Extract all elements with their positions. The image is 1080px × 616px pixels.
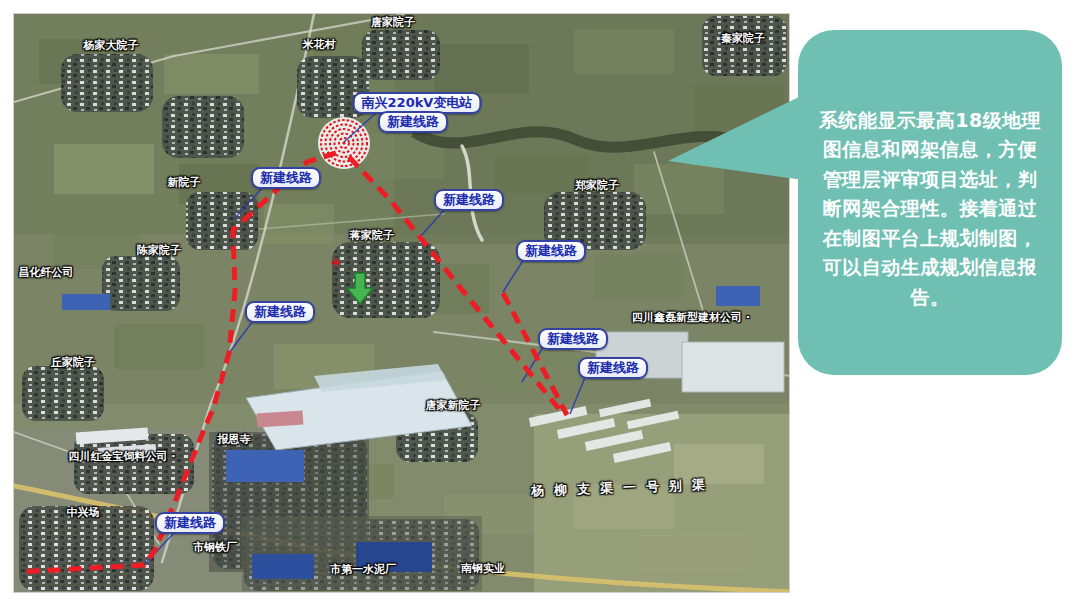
place-name: 市钢铁厂 — [193, 540, 237, 555]
route-label: 新建线路 — [434, 189, 504, 211]
place-name: 杨家大院子 — [84, 38, 139, 53]
callout-tail — [650, 85, 805, 185]
route-label: 新建线路 — [378, 111, 448, 133]
route-label: 新建线路 — [245, 301, 315, 323]
place-name: 新院子 — [168, 175, 201, 190]
callout-text: 系统能显示最高18级地理图信息和网架信息，方便管理层评审项目选址，判断网架合理性… — [798, 30, 1062, 312]
place-name: 蒋家院子 — [350, 228, 394, 243]
place-name: 唐家新院子 — [426, 398, 481, 413]
route-label: 新建线路 — [516, 240, 586, 262]
place-name: 陈家院子 — [137, 243, 181, 258]
route-label: 新建线路 — [578, 357, 648, 379]
place-name: 秦家院子 — [721, 31, 765, 46]
slide-canvas: 杨家大院子 米花村 唐家院子 秦家院子 新院子 郑家院子 陈家院子 昌化纤公司 … — [0, 0, 1080, 616]
place-name: 报恩寺 — [218, 432, 251, 447]
route-label: 新建线路 — [155, 512, 225, 534]
place-name: 郑家院子 — [575, 178, 619, 193]
callout-bubble: 系统能显示最高18级地理图信息和网架信息，方便管理层评审项目选址，判断网架合理性… — [798, 30, 1062, 375]
place-name: 米花村 — [303, 37, 336, 52]
place-name: 中兴场 — [67, 505, 100, 520]
place-name: 四川鑫磊新型建材公司 · — [632, 310, 750, 325]
route-label: 新建线路 — [538, 328, 608, 350]
place-name: 市第一水泥厂 — [330, 562, 396, 577]
place-name: 昌化纤公司 — [19, 265, 74, 280]
place-name: 南钢实业 — [461, 561, 505, 576]
place-name: 丘家院子 — [51, 355, 95, 370]
place-name: 唐家院子 — [371, 15, 415, 30]
route-label: 新建线路 — [251, 167, 321, 189]
place-name: 四川红金宝饲料公司 · — [68, 449, 175, 464]
